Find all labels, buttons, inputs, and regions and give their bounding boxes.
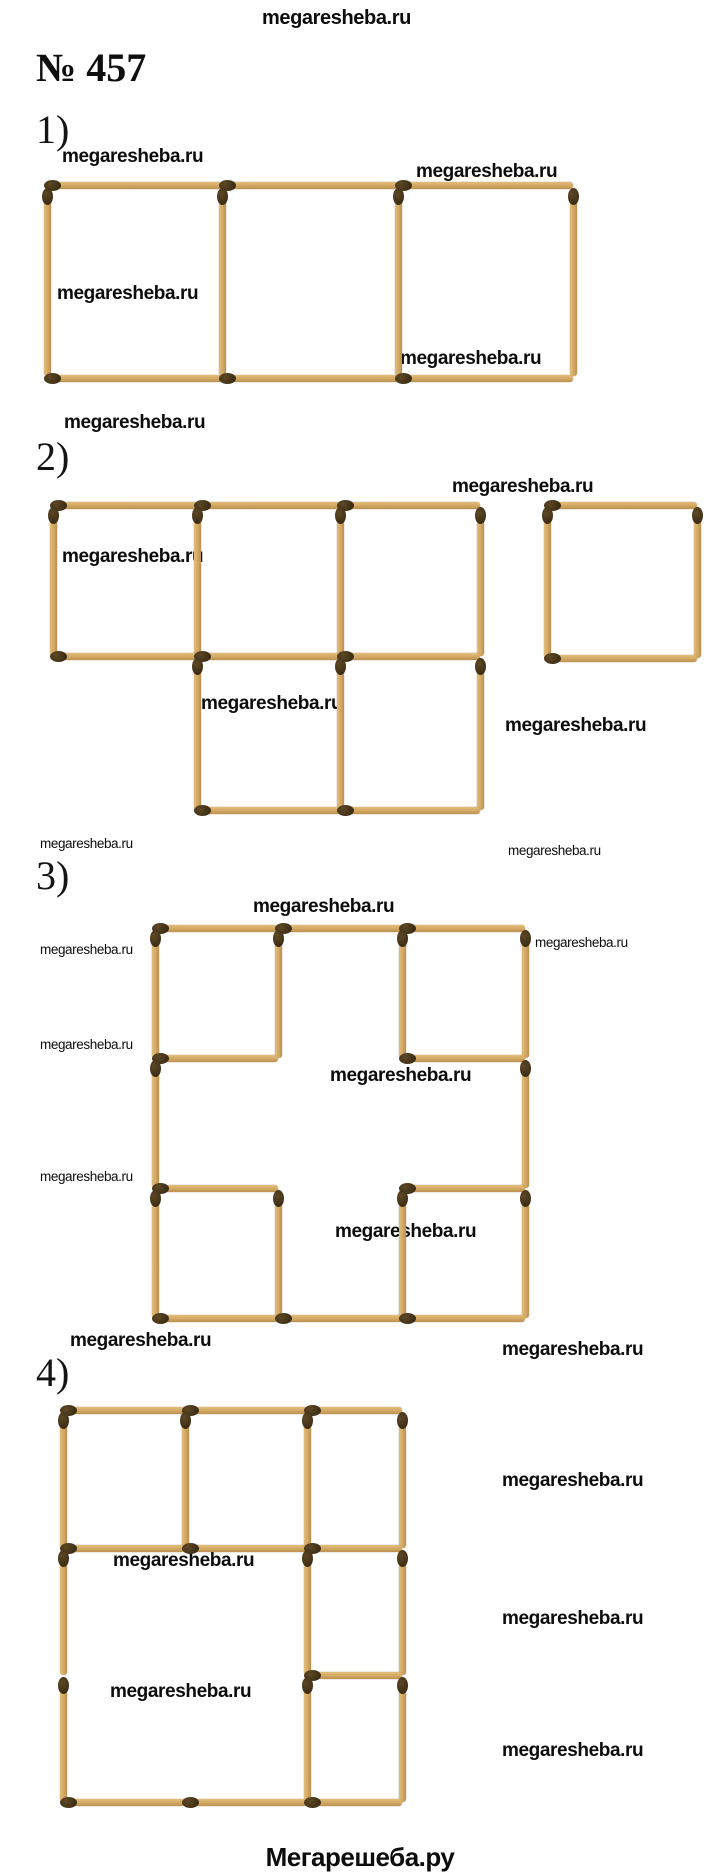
matchstick-h [155,1314,278,1323]
matchstick-body [570,190,577,376]
matchstick-h [547,501,697,510]
matchstick-v [274,1192,283,1318]
matchstick-body [194,509,201,656]
matchstick-v [569,190,578,376]
matchstick-body [399,1552,406,1675]
match-head-icon [152,1313,169,1324]
match-head-icon [397,1550,408,1567]
watermark-text: megaresheba.ru [330,1066,471,1085]
matchstick-h [185,1406,307,1415]
matchstick-v [398,1679,407,1802]
matchstick-body [278,925,402,932]
watermark-text: megaresheba.ru [40,1038,133,1052]
matchstick-body [185,1407,307,1414]
matchstick-body [304,1679,311,1802]
matchstick-v [303,1679,312,1802]
matchstick-body [275,1192,282,1318]
matchstick-body [694,509,701,658]
matchstick-v [274,932,283,1058]
matchstick-v [336,660,345,810]
matchstick-h [402,1054,525,1063]
watermark-text: megaresheba.ru [64,413,205,432]
matchstick-body [304,1552,311,1675]
matchstick-h [197,806,340,815]
match-head-icon [217,188,228,205]
watermark-text: megaresheba.ru [416,162,557,181]
watermark-text: megaresheba.ru [40,1170,133,1184]
matchstick-body [47,182,222,189]
matchstick-v [151,1062,160,1188]
match-head-icon [397,930,408,947]
watermark-text: megaresheba.ru [452,477,593,496]
matchstick-v [49,509,58,656]
part-label-4: 4) [36,1353,69,1393]
matchstick-body [222,375,398,382]
matchstick-body [340,502,480,509]
matchstick-body [544,509,551,658]
watermark-text: megaresheba.ru [505,716,646,735]
match-head-icon [192,507,203,524]
matchstick-h [185,1544,307,1553]
matchstick-h [278,924,402,933]
matchstick-body [340,807,480,814]
matchstick-h [340,501,480,510]
watermark-text: megaresheba.ru [40,943,133,957]
match-head-icon [194,805,211,816]
watermark-text: megaresheba.ru [57,284,198,303]
match-head-icon [397,1190,408,1207]
matchstick-body [197,653,340,660]
matchstick-body [398,375,573,382]
matchstick-body [278,1315,402,1322]
matchstick-body [275,932,282,1058]
matchstick-body [402,1055,525,1062]
part-label-3: 3) [36,856,69,896]
match-head-icon [182,1797,199,1808]
matchstick-v [543,509,552,658]
problem-number: № 457 [36,48,146,88]
matchstick-v [151,1192,160,1318]
matchstick-body [399,1679,406,1802]
match-head-icon [44,373,61,384]
matchstick-h [340,652,480,661]
match-head-icon [273,1190,284,1207]
matchstick-v [398,1414,407,1548]
matchstick-body [547,502,697,509]
part-label-2: 2) [36,437,69,477]
match-head-icon [335,507,346,524]
matchstick-body [402,1315,525,1322]
match-head-icon [397,1677,408,1694]
matchstick-body [477,509,484,656]
matchstick-body [197,807,340,814]
part-label-1: 1) [36,110,69,150]
matchstick-h [340,806,480,815]
matchstick-h [63,1406,185,1415]
matchstick-body [522,932,529,1058]
matchstick-v [59,1552,68,1675]
match-head-icon [42,188,53,205]
matchstick-body [152,1192,159,1318]
matchstick-body [197,502,340,509]
match-head-icon [475,507,486,524]
matchstick-body [53,502,197,509]
matchstick-h [402,924,525,933]
match-head-icon [273,930,284,947]
matchstick-body [399,1192,406,1318]
match-head-icon [520,1060,531,1077]
watermark-text: megaresheba.ru [70,1331,211,1350]
matchstick-v [181,1414,190,1548]
match-head-icon [58,1677,69,1694]
match-head-icon [219,373,236,384]
matchstick-h [197,652,340,661]
matchstick-body [44,190,51,376]
matchstick-body [152,932,159,1058]
matchstick-h [278,1314,402,1323]
matchstick-body [155,1185,278,1192]
match-head-icon [182,1543,199,1554]
matchstick-v [303,1414,312,1548]
matchstick-v [193,509,202,656]
watermark-text: megaresheba.ru [502,1609,643,1628]
match-head-icon [337,805,354,816]
match-head-icon [544,653,561,664]
watermark-text: megaresheba.ru [253,897,394,916]
match-head-icon [395,373,412,384]
watermark-text: megaresheba.ru [201,694,342,713]
matchstick-v [59,1679,68,1802]
match-head-icon [542,507,553,524]
matchstick-v [476,660,485,810]
matchstick-h [398,374,573,383]
match-head-icon [302,1550,313,1567]
matchstick-v [59,1414,68,1548]
matchstick-v [521,1062,530,1188]
match-head-icon [150,1190,161,1207]
matchstick-body [152,1062,159,1188]
match-head-icon [58,1550,69,1567]
matchstick-v [693,509,702,658]
matchstick-body [63,1799,185,1806]
matchstick-v [476,509,485,656]
matchstick-h [63,1798,185,1807]
watermark-text: megaresheba.ru [502,1340,643,1359]
matchstick-v [218,190,227,376]
matchstick-body [307,1799,402,1806]
match-head-icon [302,1412,313,1429]
matchstick-body [398,182,573,189]
matchstick-body [395,190,402,376]
matchstick-body [337,509,344,656]
matchstick-body [185,1545,307,1552]
matchstick-body [222,182,398,189]
match-head-icon [397,1412,408,1429]
matchstick-h [222,181,398,190]
matchstick-body [547,655,697,662]
matchstick-h [53,501,197,510]
matchstick-body [47,375,222,382]
matchstick-h [547,654,697,663]
matchstick-h [197,501,340,510]
matchstick-body [182,1414,189,1548]
footer-brand: Мегарешеба.ру [266,1842,455,1873]
watermark-text: megaresheba.ru [110,1682,251,1701]
matchstick-v [151,932,160,1058]
matchstick-v [394,190,403,376]
watermark-text: megaresheba.ru [502,1741,643,1760]
matchstick-h [155,1054,278,1063]
match-head-icon [520,1190,531,1207]
matchstick-h [307,1671,402,1680]
matchstick-body [50,509,57,656]
matchstick-body [340,653,480,660]
match-head-icon [60,1797,77,1808]
matchstick-h [307,1544,402,1553]
matchstick-body [307,1672,402,1679]
watermark-text: megaresheba.ru [502,1471,643,1490]
match-head-icon [393,188,404,205]
watermark-text: megaresheba.ru [40,837,133,851]
match-head-icon [48,507,59,524]
watermark-text: megaresheba.ru [262,8,411,28]
matchstick-body [399,1414,406,1548]
matchstick-body [155,925,278,932]
matchstick-body [63,1545,185,1552]
matchstick-h [402,1314,525,1323]
matchstick-h [63,1544,185,1553]
matchstick-v [336,509,345,656]
matchstick-body [194,660,201,810]
match-head-icon [692,507,703,524]
matchstick-h [307,1798,402,1807]
matchstick-body [60,1552,67,1675]
matchstick-h [155,1184,278,1193]
match-head-icon [475,658,486,675]
watermark-text: megaresheba.ru [113,1551,254,1570]
matchstick-body [522,1192,529,1318]
match-head-icon [150,930,161,947]
matchstick-v [398,1552,407,1675]
matchstick-v [398,932,407,1058]
matchstick-v [398,1192,407,1318]
matchstick-h [47,181,222,190]
match-head-icon [304,1797,321,1808]
matchstick-body [307,1545,402,1552]
matchstick-h [402,1184,525,1193]
matchstick-v [303,1552,312,1675]
matchstick-body [60,1414,67,1548]
match-head-icon [192,658,203,675]
matchstick-body [522,1062,529,1188]
watermark-text: megaresheba.ru [62,147,203,166]
match-head-icon [58,1412,69,1429]
match-head-icon [50,651,67,662]
matchstick-body [402,925,525,932]
match-head-icon [180,1412,191,1429]
matchstick-body [337,660,344,810]
match-head-icon [150,1060,161,1077]
match-head-icon [335,658,346,675]
matchstick-body [304,1414,311,1548]
watermark-text: megaresheba.ru [535,936,628,950]
matchstick-body [219,190,226,376]
matchstick-body [53,653,197,660]
matchstick-v [521,932,530,1058]
match-head-icon [399,1313,416,1324]
match-head-icon [399,1053,416,1064]
watermark-text: megaresheba.ru [508,844,601,858]
matchstick-body [399,932,406,1058]
matchstick-h [155,924,278,933]
matchstick-h [185,1798,307,1807]
matchstick-body [477,660,484,810]
matchstick-body [155,1055,278,1062]
watermark-text: megaresheba.ru [62,547,203,566]
matchstick-h [307,1406,402,1415]
match-head-icon [275,1313,292,1324]
matchstick-v [193,660,202,810]
matchstick-body [185,1799,307,1806]
matchstick-body [63,1407,185,1414]
matchstick-h [222,374,398,383]
matchstick-h [398,181,573,190]
matchstick-v [43,190,52,376]
watermark-text: megaresheba.ru [400,349,541,368]
matchstick-body [155,1315,278,1322]
matchstick-v [521,1192,530,1318]
match-head-icon [520,930,531,947]
matchstick-h [53,652,197,661]
solution-page: № 457 megaresheba.rumegaresheba.rumegare… [0,0,720,1876]
matchstick-body [402,1185,525,1192]
matchstick-body [307,1407,402,1414]
matchstick-h [47,374,222,383]
matchstick-body [60,1679,67,1802]
match-head-icon [568,188,579,205]
match-head-icon [302,1677,313,1694]
